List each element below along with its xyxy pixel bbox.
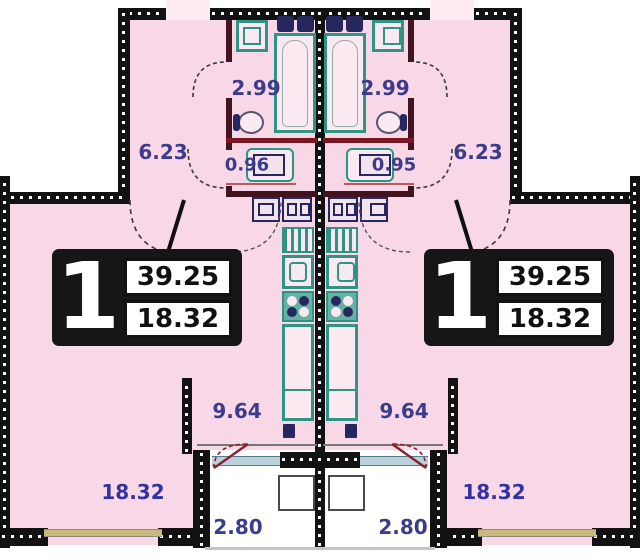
apartment-number: 1 [424,251,496,343]
room-label-balcony-left: 2.80 [213,515,262,539]
room-label-wc-right: 0.95 [372,155,416,176]
apartment-card-right: 1 39.25 18.32 [424,249,614,346]
total-area-value: 39.25 [124,258,232,296]
room-label-living-right: 18.32 [462,480,525,504]
room-label-kitchen-right: 9.64 [379,399,428,423]
kitchen-arch-left [230,200,281,252]
wc-door-arc-right [414,149,452,188]
bath-door-arc-left [193,62,226,97]
room-label-living-left: 18.32 [101,480,164,504]
room-label-balcony-right: 2.80 [378,515,427,539]
wc-door-arc-left [188,149,226,188]
kitchen-arch-right [359,200,410,252]
balcony-door-leaf-right [392,444,426,468]
room-label-kitchen-left: 9.64 [212,399,261,423]
room-label-hallway-left: 6.23 [138,140,187,164]
room-label-hallway-right: 6.23 [453,140,502,164]
apartment-number: 1 [52,251,124,343]
floor-plan: 1 39.25 18.32 1 39.25 18.32 2.99 2.99 6.… [0,0,640,560]
room-label-wc-left: 0.96 [225,155,269,176]
total-area-value: 39.25 [496,258,604,296]
apartment-card-left: 1 39.25 18.32 [52,249,242,346]
entry-door-leaf-left [168,200,184,252]
room-label-bathroom-left: 2.99 [231,76,280,100]
living-area-value: 18.32 [124,300,232,338]
living-area-value: 18.32 [496,300,604,338]
bath-door-arc-right [414,62,447,97]
balcony-door-leaf-left [214,444,248,468]
room-label-bathroom-right: 2.99 [360,76,409,100]
